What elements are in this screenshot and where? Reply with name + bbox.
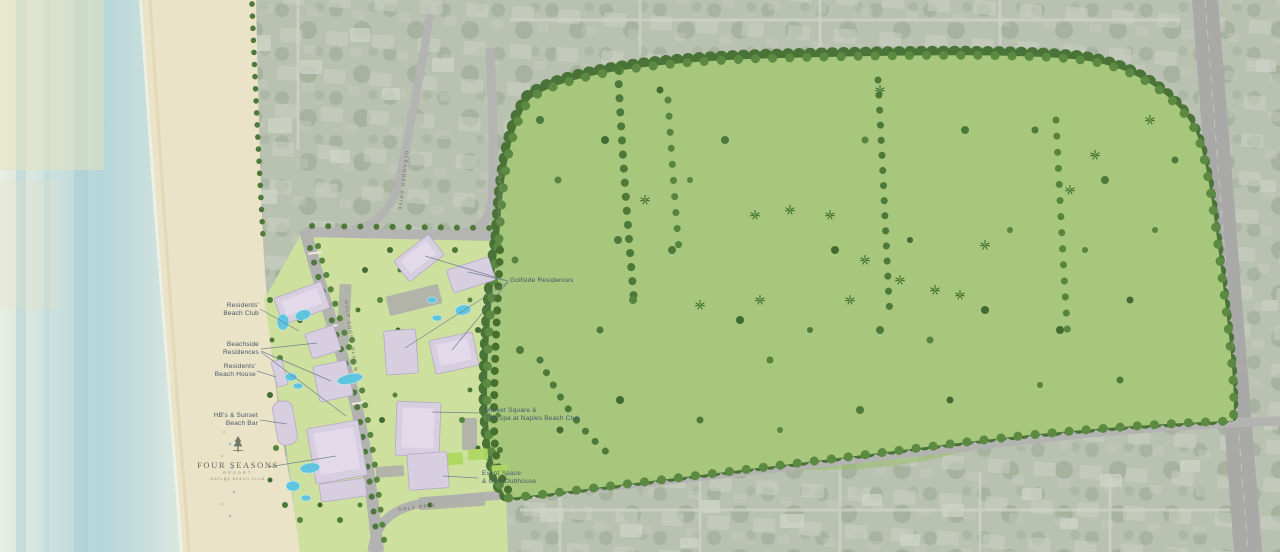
label-line: The Spa at Naples Beach Club: [485, 415, 580, 423]
label-line: Residents': [196, 363, 256, 371]
logo-wordmark: FOUR SEASONS: [192, 460, 284, 470]
label-line: Event Space: [482, 470, 536, 478]
label-residents-beach-house: Residents' Beach House: [196, 363, 256, 380]
label-line: Residences: [199, 349, 259, 357]
label-line: Beachside: [199, 341, 259, 349]
label-line: Golfside Residences: [510, 277, 573, 285]
four-seasons-logo: FOUR SEASONS RESORT NAPLES BEACH CLUB: [192, 436, 284, 481]
logo-resort-line: RESORT: [192, 471, 284, 475]
four-seasons-tree-icon: [230, 436, 246, 454]
ocean-yellow-wash: [0, 0, 104, 170]
label-line: Beach Club: [199, 310, 259, 318]
label-line: HB's & Sunset: [198, 412, 258, 420]
label-beachside-residences: Beachside Residences: [199, 341, 259, 358]
label-golfside-residences: Golfside Residences: [510, 277, 573, 285]
label-line: Residents': [199, 302, 259, 310]
road-label-crayton-road: CRAYTON ROAD: [496, 170, 502, 224]
label-line: Beach Bar: [198, 420, 258, 428]
site-plan-map: Residents' Beach Club Beachside Residenc…: [0, 0, 1280, 552]
entry-drive: [305, 232, 497, 236]
label-market-square-spa: Market Square & The Spa at Naples Beach …: [485, 407, 580, 424]
label-hbs-sunset-beach-bar: HB's & Sunset Beach Bar: [198, 412, 258, 429]
label-line: & Golf Clubhouse: [482, 478, 536, 486]
ocean-yellow-wash-2: [0, 180, 60, 310]
logo-property-line: NAPLES BEACH CLUB: [192, 477, 284, 481]
label-line: Market Square &: [485, 407, 580, 415]
label-event-space-golf-clubhouse: Event Space & Golf Clubhouse: [482, 470, 536, 487]
label-residents-beach-club: Residents' Beach Club: [199, 302, 259, 319]
label-line: Beach House: [196, 371, 256, 379]
